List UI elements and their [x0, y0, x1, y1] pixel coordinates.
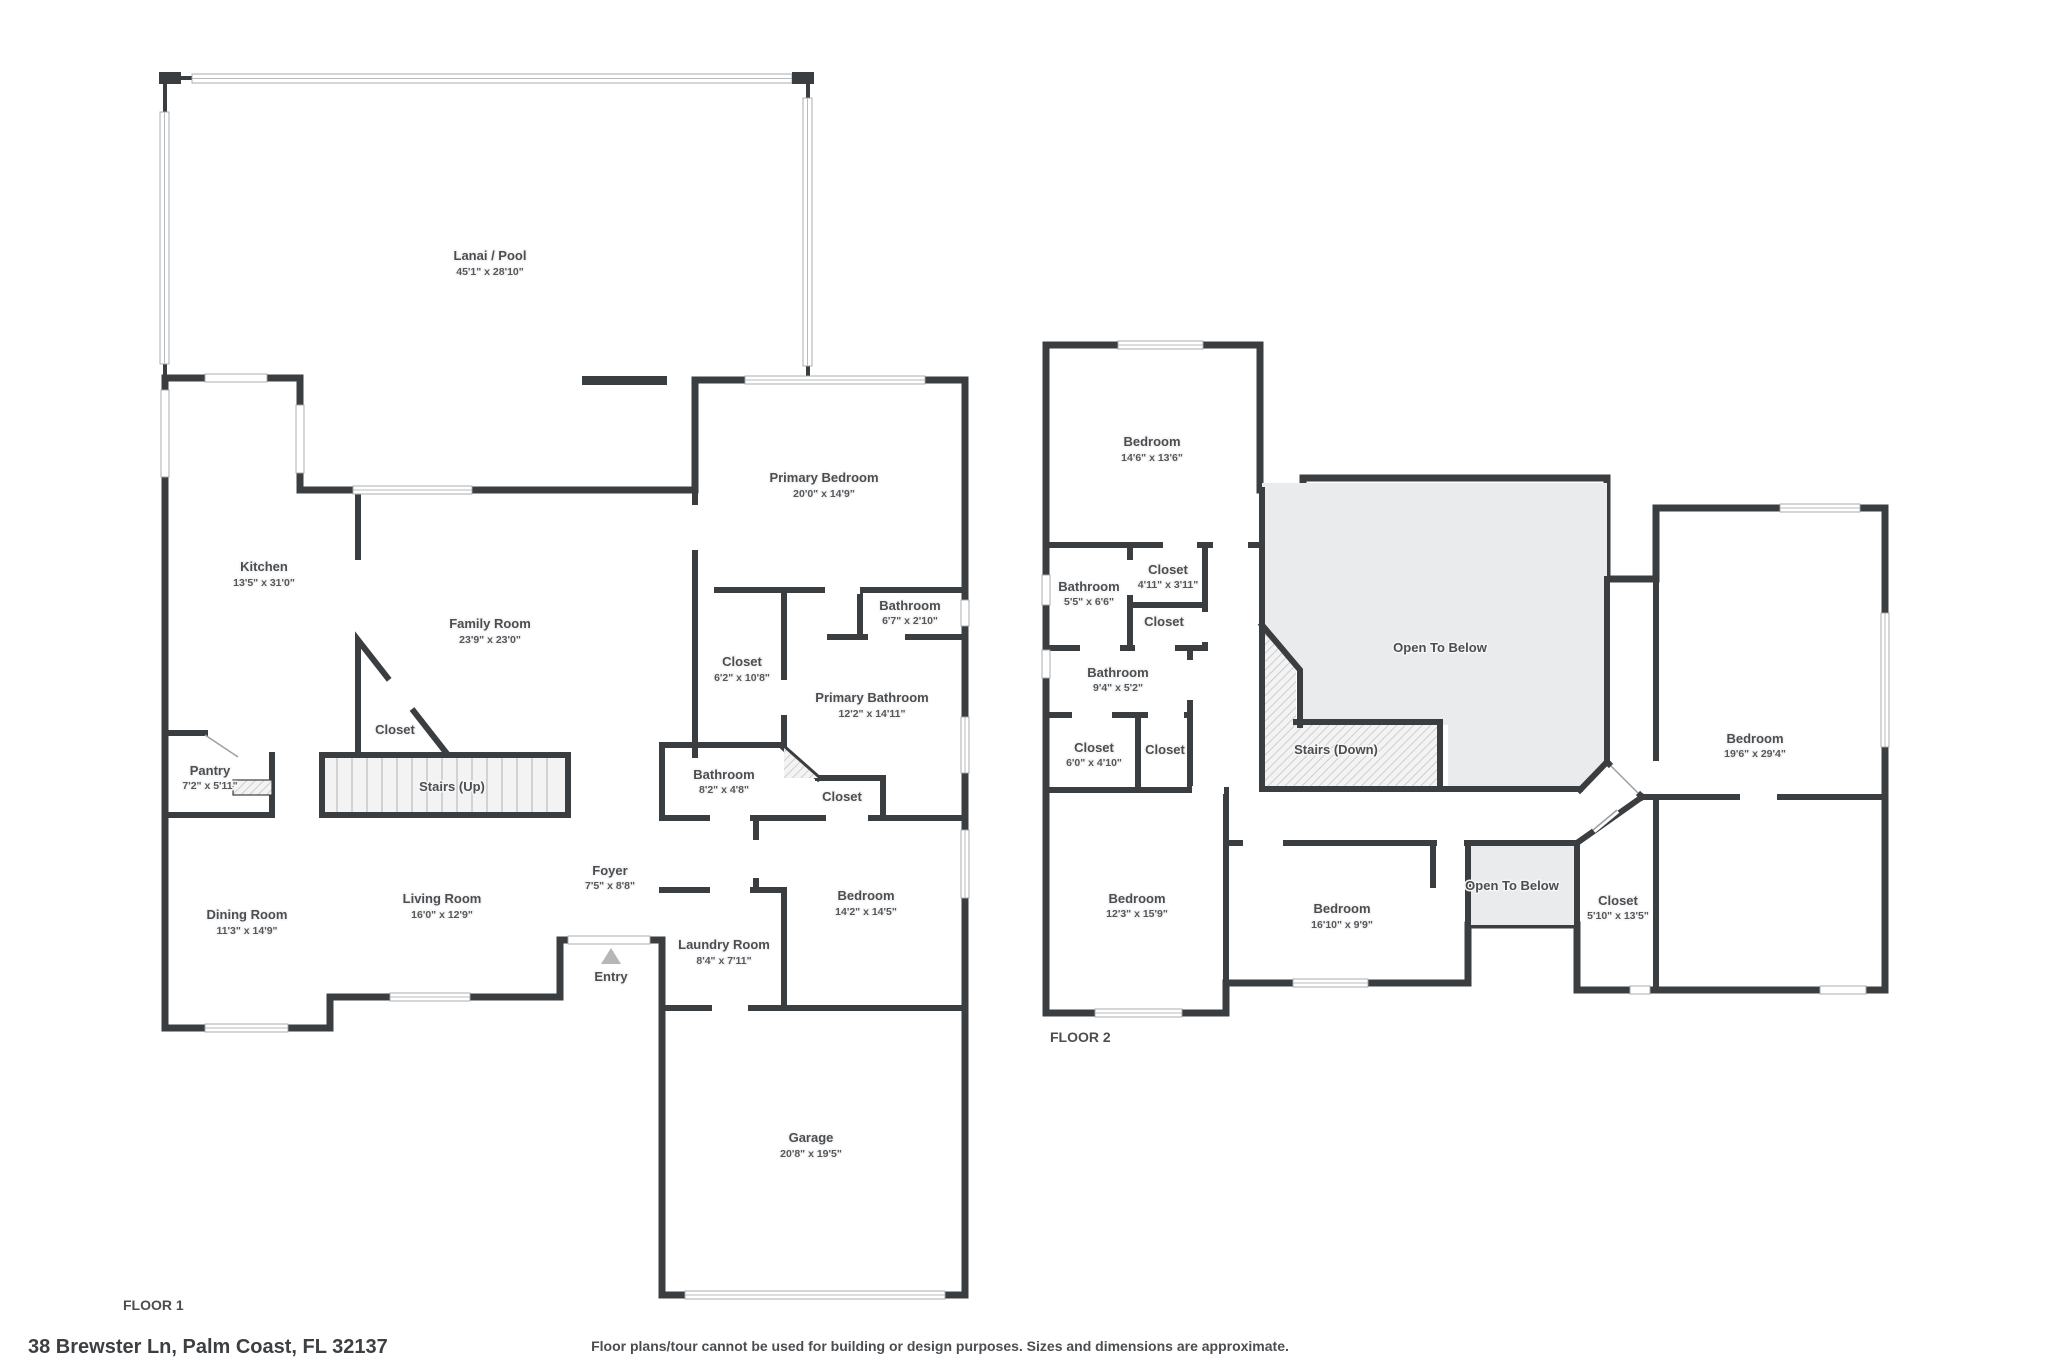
lanai-corner-post — [792, 72, 814, 84]
f2-room-dims-bedroom-sw: 12'3" x 15'9" — [1106, 908, 1168, 920]
f1-room-label-kitchen: Kitchen — [240, 559, 288, 574]
f2-room-label-closet-3: Closet — [1074, 740, 1114, 755]
f1-room-dims-pantry: 7'2" x 5'11" — [182, 780, 237, 792]
f1-room-label-laundry: Laundry Room — [678, 937, 770, 952]
f2-label-open-to-below-2: Open To Below — [1465, 878, 1560, 893]
f1-room-dims-foyer: 7'5" x 8'8" — [585, 880, 635, 892]
f1-room-label-stairs-up: Stairs (Up) — [419, 779, 485, 794]
f1-room-label-dining-room: Dining Room — [207, 907, 288, 922]
f2-room-label-bedroom-sw: Bedroom — [1108, 891, 1165, 906]
f1-room-label-primary-bedroom: Primary Bedroom — [769, 470, 878, 485]
f2-room-label-bathroom: Bathroom — [1087, 665, 1148, 680]
f1-room-dims-family-room: 23'9" x 23'0" — [459, 634, 521, 646]
lanai-area — [165, 78, 808, 490]
floor1-windows — [161, 374, 969, 1299]
f2-room-dims-closet-1: 4'11" x 3'11" — [1138, 579, 1199, 591]
f1-room-dims-dining-room: 11'3" x 14'9" — [216, 925, 277, 937]
floor1-plan: Lanai / Pool 45'1" x 28'10" Kitchen 13'5… — [123, 72, 969, 1313]
f2-room-label-closet-5: Closet — [1598, 893, 1638, 908]
f2-room-label-closet-1: Closet — [1148, 562, 1188, 577]
f2-room-dims-bedroom-e: 19'6" x 29'4" — [1724, 748, 1786, 760]
floor1-labels: Lanai / Pool 45'1" x 28'10" Kitchen 13'5… — [182, 248, 940, 1160]
f2-label-stairs-down: Stairs (Down) — [1294, 742, 1378, 757]
f1-room-dims-laundry: 8'4" x 7'11" — [696, 955, 751, 967]
f2-room-dims-bathroom: 9'4" x 5'2" — [1093, 682, 1143, 694]
f1-room-dims-living-room: 16'0" x 12'9" — [411, 909, 473, 921]
f2-room-dims-closet-5: 5'10" x 13'5" — [1587, 910, 1649, 922]
f1-room-label-bedroom: Bedroom — [837, 888, 894, 903]
f1-room-label-primary-bathroom: Primary Bathroom — [815, 690, 928, 705]
f1-room-dims-garage: 20'8" x 19'5" — [780, 1148, 842, 1160]
entry-arrow-icon — [601, 948, 621, 964]
f1-room-label-closet-primary: Closet — [722, 654, 762, 669]
f2-label-open-to-below: Open To Below — [1393, 640, 1488, 655]
f1-room-dims-bathroom-small: 6'7" x 2'10" — [882, 615, 938, 627]
floor-plan-canvas: Lanai / Pool 45'1" x 28'10" Kitchen 13'5… — [0, 0, 2048, 1365]
f1-room-dims-primary-bathroom: 12'2" x 14'11" — [839, 708, 906, 720]
f2-room-dims-closet-3: 6'0" x 4'10" — [1066, 757, 1122, 769]
pantry-shelf — [233, 780, 272, 795]
f1-room-label-closet-understair: Closet — [375, 722, 415, 737]
f1-room-label-living-room: Living Room — [403, 891, 482, 906]
f2-room-dims-bathroom-small: 5'5" x 6'6" — [1064, 596, 1114, 608]
floor-plan-page: Lanai / Pool 45'1" x 28'10" Kitchen 13'5… — [0, 0, 2048, 1365]
lanai-corner-post — [159, 72, 181, 84]
f2-room-label-bathroom-small: Bathroom — [1058, 579, 1119, 594]
f1-room-label-pantry: Pantry — [190, 763, 231, 778]
f1-room-dims-kitchen: 13'5" x 31'0" — [233, 577, 295, 589]
f2-room-dims-bedroom-nw: 14'6" x 13'6" — [1121, 452, 1183, 464]
f1-room-label-garage: Garage — [789, 1130, 834, 1145]
floor1-title: FLOOR 1 — [123, 1297, 184, 1313]
f1-room-label-entry: Entry — [594, 969, 628, 984]
pantry-door-leaf — [205, 735, 238, 757]
lanai-wall-stub — [582, 376, 667, 385]
f1-room-dims-bedroom: 14'2" x 14'5" — [835, 906, 897, 918]
floor2-title: FLOOR 2 — [1050, 1029, 1111, 1045]
f2-room-label-bedroom-nw: Bedroom — [1123, 434, 1180, 449]
f1-room-dims-bathroom: 8'2" x 4'8" — [699, 784, 749, 796]
f1-room-label-bathroom-small: Bathroom — [879, 598, 940, 613]
disclaimer-text: Floor plans/tour cannot be used for buil… — [591, 1338, 1289, 1354]
f1-room-dims-primary-bedroom: 20'0" x 14'9" — [793, 488, 855, 500]
f2-room-dims-bedroom-s: 16'10" x 9'9" — [1311, 919, 1373, 931]
f1-room-label-foyer: Foyer — [592, 863, 627, 878]
f2-room-label-bedroom-s: Bedroom — [1313, 901, 1370, 916]
f1-room-label-family-room: Family Room — [449, 616, 531, 631]
f2-room-label-closet-2: Closet — [1144, 614, 1184, 629]
f2-room-label-bedroom-e: Bedroom — [1726, 731, 1783, 746]
f1-room-dims-lanai: 45'1" x 28'10" — [456, 266, 524, 278]
floor1-door-openings — [300, 405, 945, 1295]
floor1-footprint — [165, 378, 965, 1295]
f1-room-label-lanai: Lanai / Pool — [454, 248, 527, 263]
floor2-plan: Bedroom 14'6" x 13'6" Bathroom 5'5" x 6'… — [1042, 341, 1889, 1045]
address-text: 38 Brewster Ln, Palm Coast, FL 32137 — [28, 1336, 388, 1358]
f1-room-label-closet-hall: Closet — [822, 789, 862, 804]
f1-room-label-bathroom: Bathroom — [693, 767, 754, 782]
f2-room-label-closet-4: Closet — [1145, 742, 1185, 757]
f1-room-dims-closet-primary: 6'2" x 10'8" — [714, 672, 770, 684]
